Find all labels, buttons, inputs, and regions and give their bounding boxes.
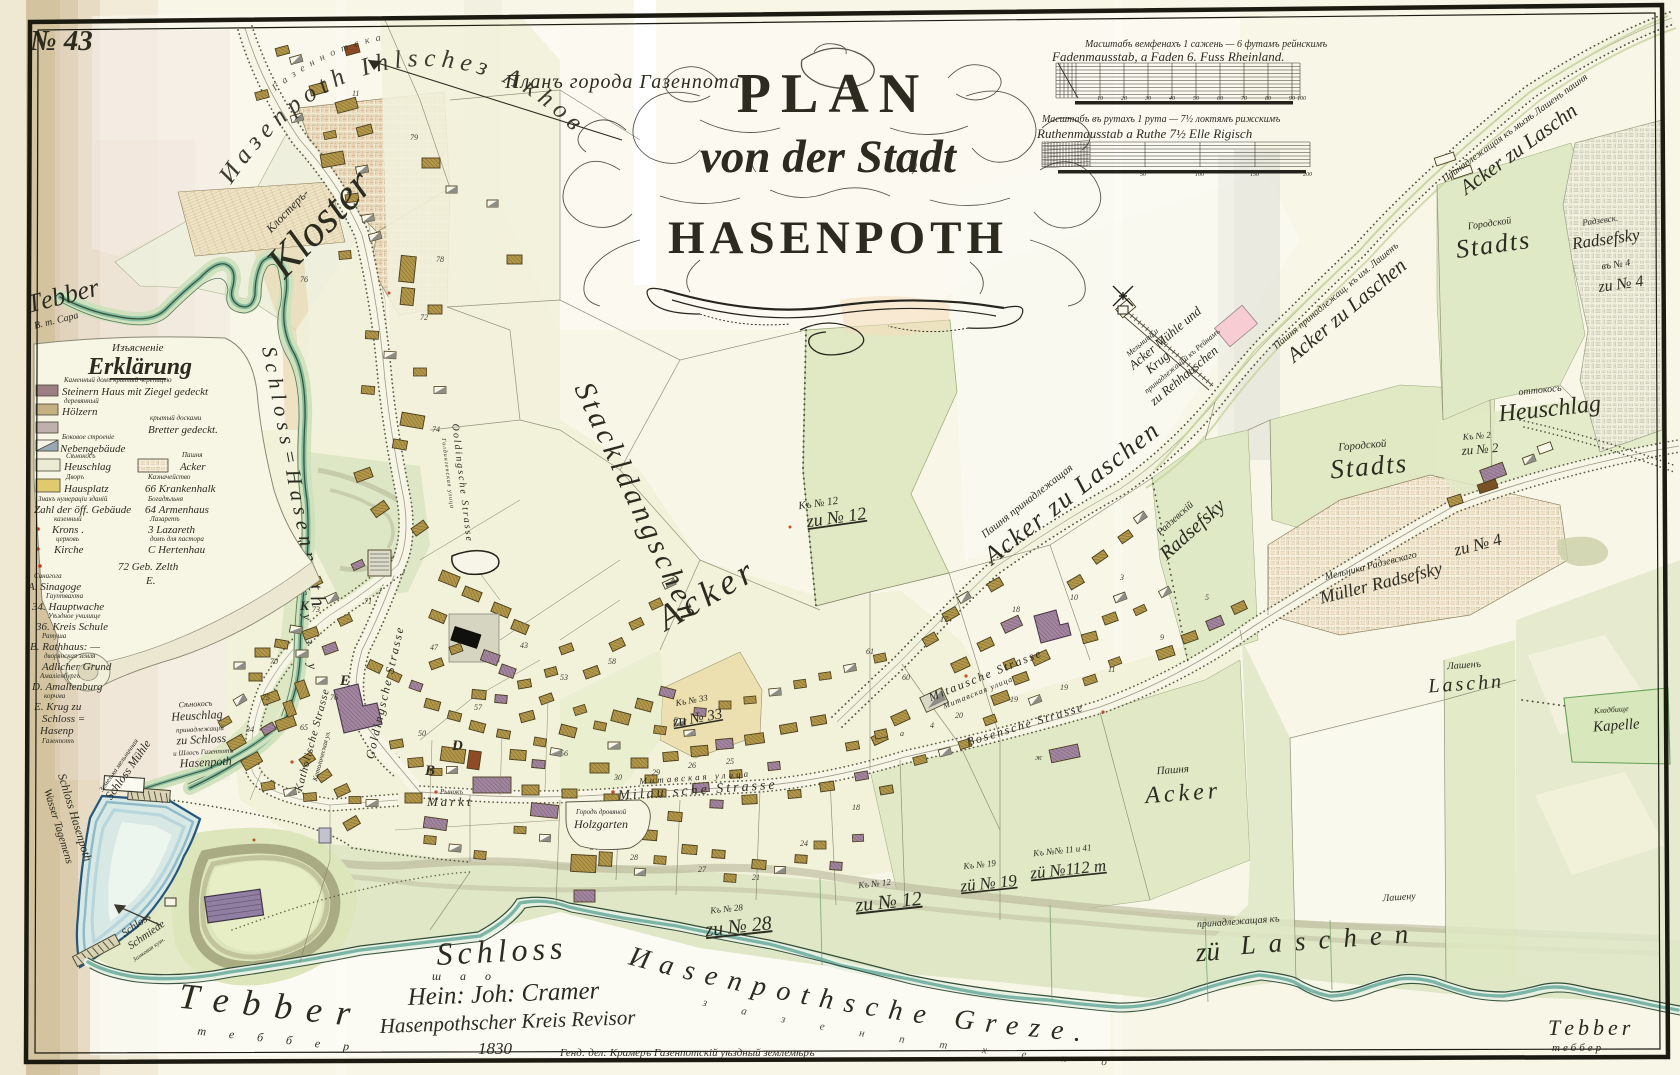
svg-text:76: 76 bbox=[330, 693, 338, 702]
svg-text:1830: 1830 bbox=[478, 1039, 513, 1058]
svg-text:Вretter gedeckt.: Вretter gedeckt. bbox=[148, 424, 218, 436]
svg-text:18: 18 bbox=[1012, 605, 1020, 614]
svg-text:von der Stadt: von der Stadt bbox=[700, 131, 958, 183]
svg-text:70: 70 bbox=[270, 657, 278, 666]
svg-text:Знакъ нумераціи зданій: Знакъ нумераціи зданій bbox=[38, 495, 108, 503]
svg-text:20: 20 bbox=[1121, 96, 1127, 102]
svg-text:Каменный домъ крытый черепицею: Каменный домъ крытый черепицею bbox=[63, 376, 172, 384]
svg-text:100: 100 bbox=[1297, 96, 1306, 102]
svg-text:деревянный: деревянный bbox=[64, 397, 99, 405]
svg-text:74: 74 bbox=[432, 425, 440, 434]
svg-text:Казначейство: Казначейство bbox=[147, 473, 191, 481]
svg-text:крытый досками: крытый досками bbox=[150, 414, 202, 422]
svg-text:Генд: дел: Крамеръ Газенпотск: Генд: дел: Крамеръ Газенпотскій уѣздный … bbox=[559, 1047, 815, 1059]
svg-text:Уѣздное училище: Уѣздное училище bbox=[48, 612, 100, 620]
svg-text:Е: Е bbox=[339, 673, 350, 689]
svg-text:24: 24 bbox=[800, 839, 808, 848]
svg-text:20: 20 bbox=[955, 711, 963, 720]
svg-text:60: 60 bbox=[1217, 96, 1223, 102]
svg-text:Неuschlag: Неuschlag bbox=[170, 707, 223, 724]
svg-text:a: a bbox=[900, 729, 904, 738]
svg-text:40: 40 bbox=[1169, 95, 1175, 102]
svg-text:Дворъ: Дворъ bbox=[65, 473, 84, 481]
svg-text:21: 21 bbox=[752, 873, 760, 882]
svg-text:79: 79 bbox=[410, 133, 418, 142]
svg-text:43: 43 bbox=[520, 641, 528, 650]
svg-text:72 Geb. Zelth: 72 Geb. Zelth bbox=[118, 561, 179, 573]
svg-text:С Нertenhau: С Нertenhau bbox=[148, 544, 206, 556]
svg-text:Fadenmausstab, а Faden 6. Fuss: Fadenmausstab, а Faden 6. Fuss Rheinland… bbox=[1051, 49, 1285, 64]
svg-text:61: 61 bbox=[866, 647, 874, 656]
svg-text:Аcker: Аcker bbox=[1142, 778, 1222, 809]
svg-text:HASENPOTH: HASENPOTH bbox=[668, 212, 1008, 264]
svg-text:11: 11 bbox=[352, 89, 359, 98]
svg-text:19: 19 bbox=[1010, 695, 1018, 704]
svg-text:Асker: Асker bbox=[179, 461, 206, 473]
svg-text:28: 28 bbox=[630, 853, 638, 862]
svg-text:ж: ж bbox=[1035, 753, 1043, 762]
svg-text:Kapelle: Kapelle bbox=[1592, 716, 1641, 735]
svg-text:Лазаретъ: Лазаретъ bbox=[149, 515, 180, 523]
svg-text:5: 5 bbox=[1205, 593, 1209, 602]
svg-text:100: 100 bbox=[1195, 172, 1204, 178]
svg-text:корчма: корчма bbox=[44, 692, 66, 700]
svg-text:Наsenpоth: Наsenpоth bbox=[178, 754, 232, 771]
svg-text:Е. Кrug zu: Е. Кrug zu bbox=[33, 701, 82, 713]
svg-text:Масштабъ въ рутахъ 1 рута —: Масштабъ въ рутахъ 1 рута — 7½ локтямъ р… bbox=[1041, 114, 1280, 125]
svg-text:Маrkt: Маrkt bbox=[426, 794, 474, 809]
svg-text:75: 75 bbox=[262, 693, 270, 702]
svg-text:Наusplatz: Наusplatz bbox=[63, 483, 109, 495]
svg-text:Ратуша: Ратуша bbox=[41, 632, 67, 640]
svg-text:Ruthenmausstab а Ruthe 7½ Еlle: Ruthenmausstab а Ruthe 7½ Еlle Rigisch bbox=[1036, 126, 1252, 141]
svg-text:65: 65 bbox=[300, 723, 308, 732]
svg-text:Ноlzgаrten: Ноlzgаrten bbox=[573, 817, 628, 831]
svg-text:30: 30 bbox=[1144, 96, 1151, 102]
svg-text:Schloss: Schloss bbox=[435, 929, 568, 972]
svg-text:церковь: церковь bbox=[56, 535, 79, 543]
svg-text:200: 200 bbox=[1303, 172, 1312, 178]
svg-text:70: 70 bbox=[1241, 96, 1247, 102]
svg-text:Тebber: Тebber bbox=[1548, 1015, 1634, 1040]
svg-text:домъ для пастора: домъ для пастора bbox=[150, 535, 204, 543]
svg-text:теббер: теббер bbox=[1552, 1042, 1604, 1054]
svg-text:Рынокъ: Рынокъ bbox=[439, 788, 463, 796]
svg-text:Нölzern: Нölzern bbox=[61, 406, 98, 418]
svg-text:50: 50 bbox=[1140, 172, 1146, 178]
svg-text:Schloss =: Schloss = bbox=[42, 713, 85, 725]
svg-text:34: 34 bbox=[245, 725, 254, 734]
svg-text:Пашня: Пашня bbox=[1155, 763, 1189, 777]
svg-text:Гауптвахта: Гауптвахта bbox=[45, 592, 84, 600]
svg-text:К: К bbox=[299, 598, 310, 613]
svg-text:Амаліенбургъ: Амаліенбургъ bbox=[39, 672, 80, 680]
svg-text:казенный: казенный bbox=[54, 515, 82, 523]
svg-text:78: 78 bbox=[436, 255, 444, 264]
svg-text:66 Кrankenhalk: 66 Кrankenhalk bbox=[145, 483, 217, 495]
svg-text:150: 150 bbox=[1250, 172, 1259, 178]
svg-text:В: В bbox=[424, 763, 435, 779]
svg-text:9: 9 bbox=[1160, 633, 1164, 642]
svg-text:Изъясненіе: Изъясненіе bbox=[111, 342, 164, 354]
svg-text:57: 57 bbox=[474, 703, 483, 712]
svg-text:80: 80 bbox=[1265, 96, 1271, 102]
svg-text:Богадѣльня: Богадѣльня bbox=[147, 495, 183, 503]
svg-text:47: 47 bbox=[430, 643, 439, 652]
svg-text:4: 4 bbox=[930, 721, 934, 730]
svg-text:zü: zü bbox=[1194, 936, 1221, 968]
svg-text:Наsenp: Наsenp bbox=[39, 725, 74, 737]
svg-text:53: 53 bbox=[560, 673, 568, 682]
svg-text:PLAN: PLAN bbox=[737, 63, 929, 125]
svg-text:17: 17 bbox=[940, 615, 949, 624]
svg-text:Городъ дровяной: Городъ дровяной bbox=[575, 808, 627, 816]
svg-text:50: 50 bbox=[1193, 96, 1199, 102]
svg-text:Zahl der öff. Gebäude: Zahl der öff. Gebäude bbox=[34, 504, 131, 516]
svg-text:10: 10 bbox=[1097, 96, 1103, 102]
svg-text:10: 10 bbox=[1070, 593, 1078, 602]
svg-text:zu Schloss: zu Schloss bbox=[175, 731, 227, 748]
svg-text:27: 27 bbox=[698, 865, 707, 874]
svg-text:Синагога: Синагога bbox=[34, 572, 62, 580]
svg-text:Неuschlag: Неuschlag bbox=[63, 461, 112, 473]
svg-text:72: 72 bbox=[420, 313, 428, 322]
svg-text:D: D bbox=[451, 738, 463, 754]
svg-text:Е.: Е. bbox=[145, 575, 155, 587]
svg-text:дворянская земля: дворянская земля bbox=[44, 652, 95, 660]
svg-text:Пашня: Пашня bbox=[181, 451, 203, 459]
svg-text:26: 26 bbox=[688, 761, 696, 770]
svg-text:Сѣнокосъ: Сѣнокосъ bbox=[66, 452, 96, 460]
svg-text:3: 3 bbox=[1119, 573, 1124, 582]
svg-text:25: 25 bbox=[726, 757, 734, 766]
svg-text:50: 50 bbox=[418, 729, 426, 738]
svg-text:19: 19 bbox=[1060, 683, 1068, 692]
svg-text:90: 90 bbox=[1289, 96, 1295, 102]
svg-text:Боковое строеніе: Боковое строеніе bbox=[61, 433, 114, 441]
svg-text:58: 58 bbox=[608, 657, 616, 666]
svg-text:Газенпотъ: Газенпотъ bbox=[41, 737, 75, 745]
svg-text:30: 30 bbox=[613, 773, 622, 782]
svg-text:60: 60 bbox=[902, 673, 910, 682]
svg-text:18: 18 bbox=[852, 803, 860, 812]
svg-text:D. Аmalienburg: D. Аmalienburg bbox=[31, 681, 103, 693]
svg-text:Кirche: Кirche bbox=[53, 544, 84, 556]
svg-text:71: 71 bbox=[364, 597, 372, 606]
svg-text:Планъ города Газенпота: Планъ города Газенпота bbox=[504, 71, 741, 93]
